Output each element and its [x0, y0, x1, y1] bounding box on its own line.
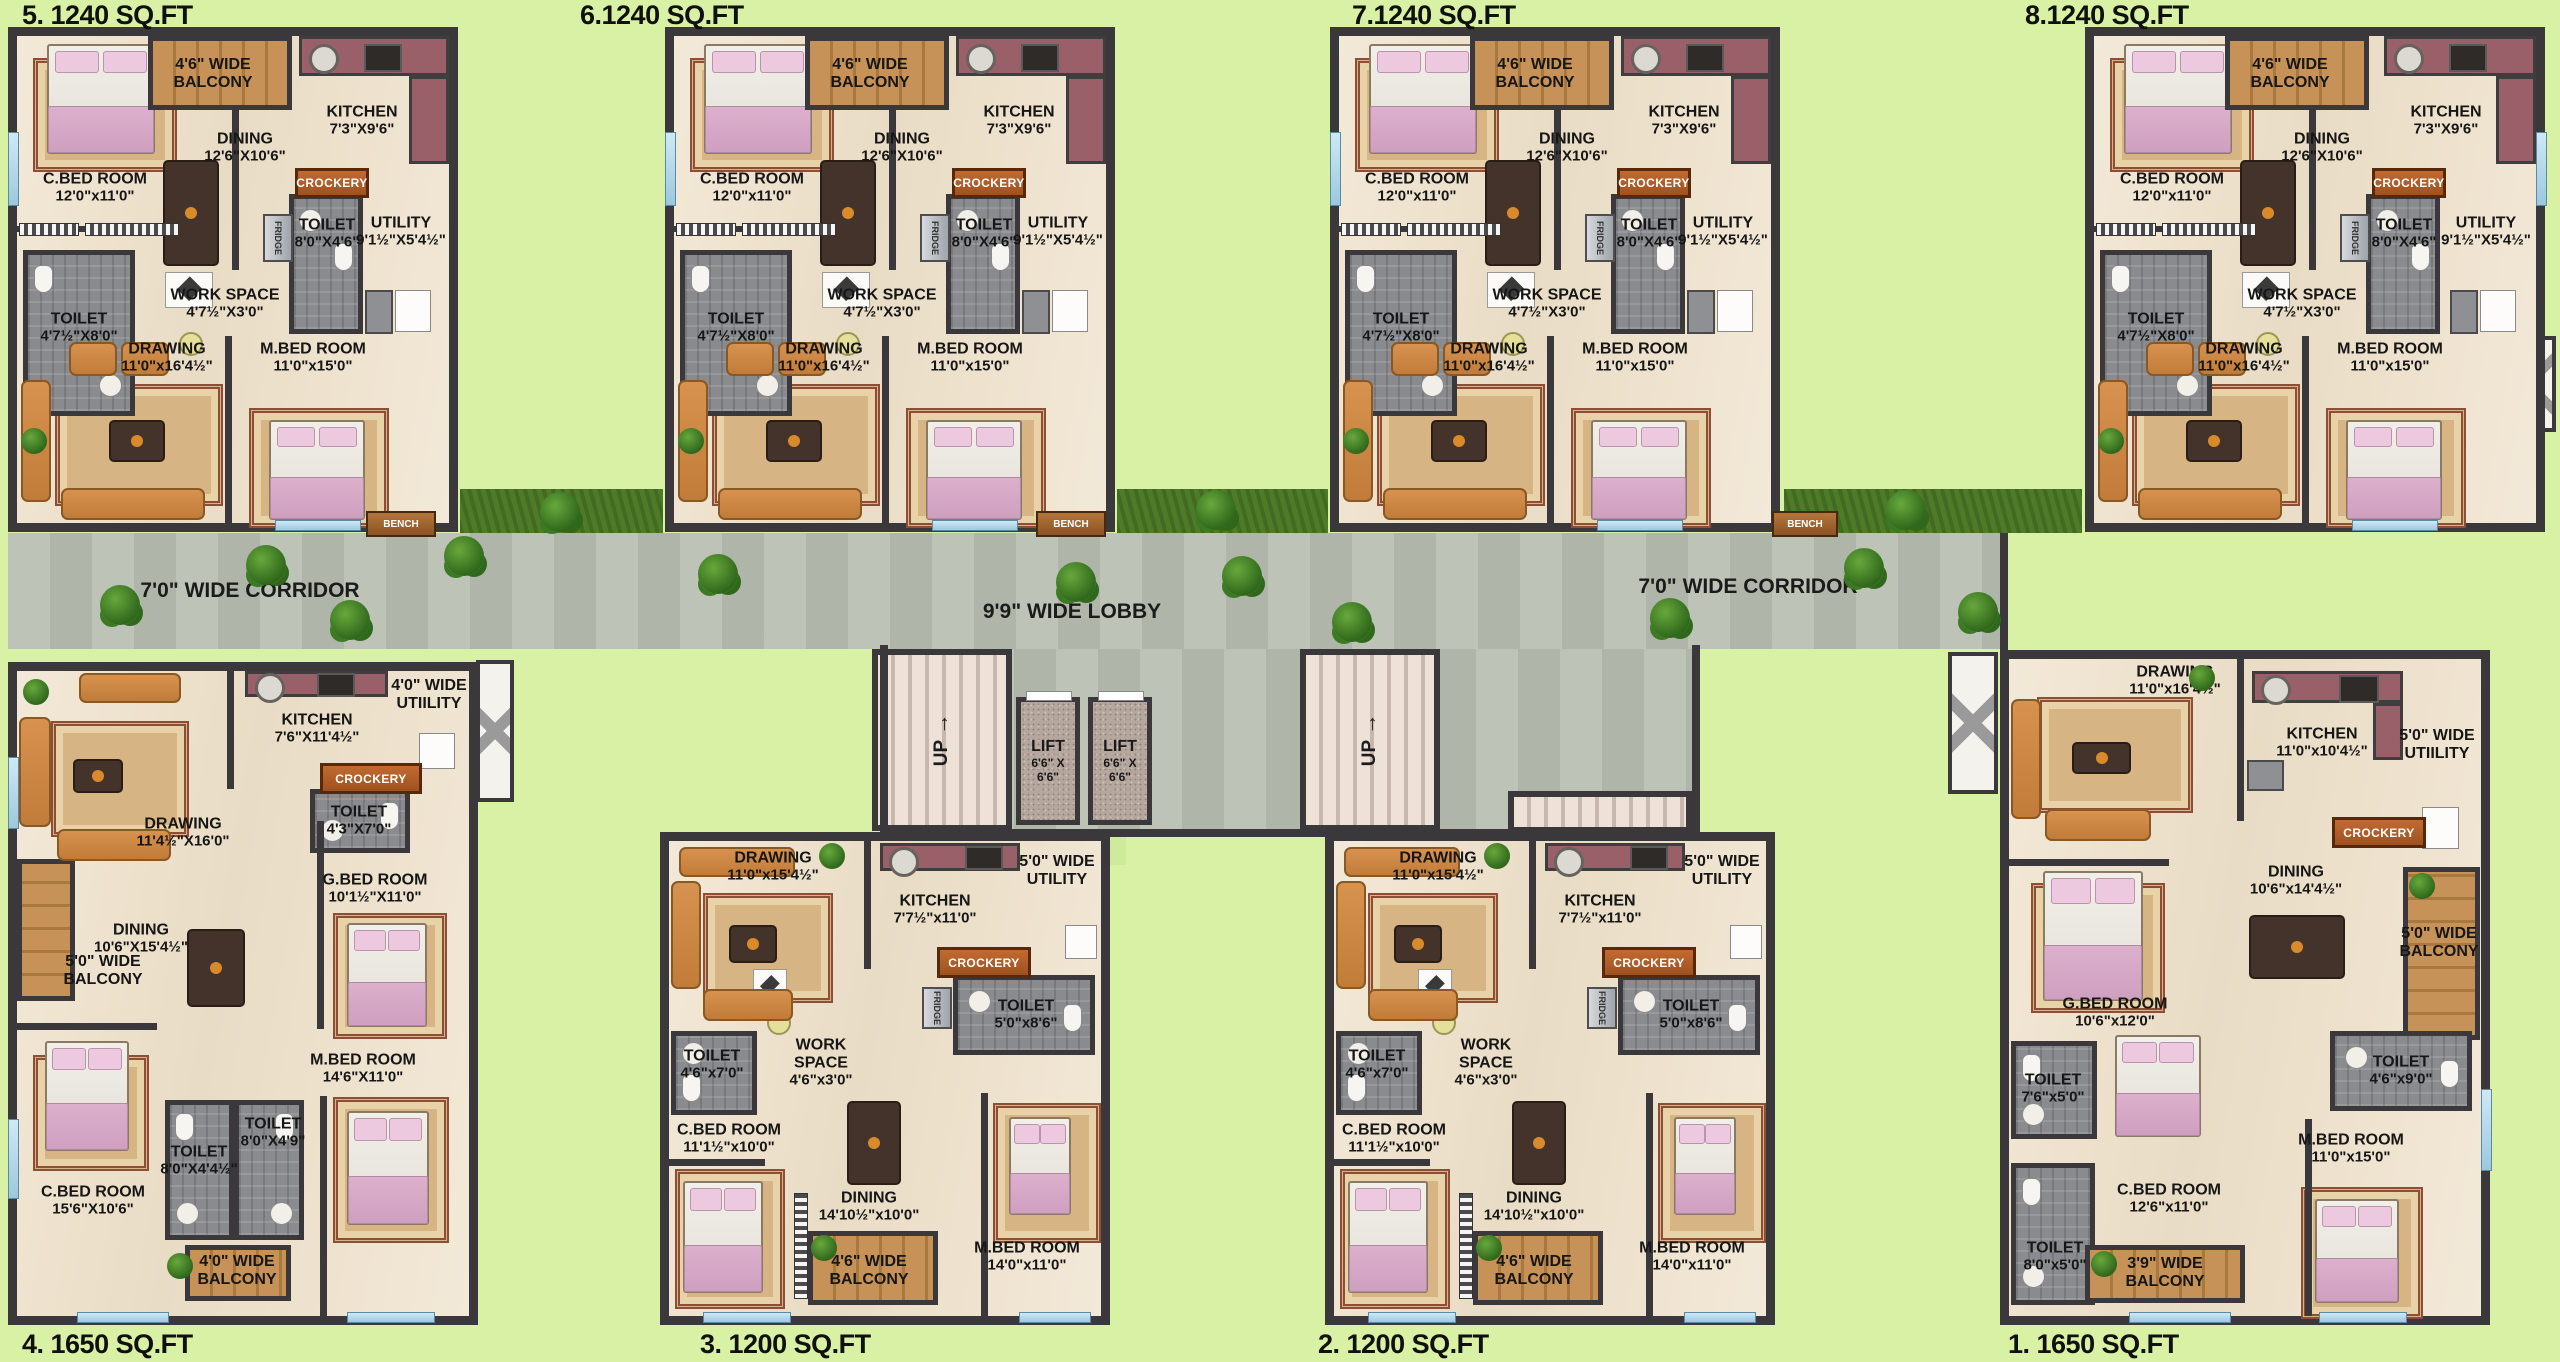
- toilet-label: TOILET5'0"x8'6": [994, 998, 1057, 1033]
- interior-wall: [2302, 336, 2309, 523]
- interior-wall: [882, 336, 889, 523]
- plant-icon: [2098, 428, 2124, 454]
- kitchen-appliance: [2247, 760, 2284, 791]
- plant-icon: [167, 1253, 193, 1279]
- toilet-icon: [691, 265, 710, 293]
- crockery-shelf: CROCKERY: [2332, 817, 2426, 848]
- cbed-label: C.BED ROOM12'0"x11'0": [1365, 171, 1469, 206]
- toilet-label: TOILET8'0"X4'4½": [160, 1144, 237, 1179]
- plant-icon: [2189, 665, 2215, 691]
- mbed-label: M.BED ROOM11'0"x15'0": [917, 341, 1023, 376]
- sink-icon: [966, 44, 996, 74]
- plant-icon: [2409, 873, 2435, 899]
- crockery-shelf: CROCKERY: [937, 947, 1031, 978]
- interior-wall: [1529, 841, 1536, 969]
- unit-7-title: 7.1240 SQ.FT: [1352, 0, 1516, 31]
- toilet-room: [2011, 1163, 2095, 1305]
- drawing-label: DRAWING11'0"x16'4½": [121, 341, 212, 376]
- tree: [1222, 556, 1262, 596]
- railing-window: [794, 1193, 808, 1299]
- sofa: [19, 717, 51, 827]
- armchair: [69, 342, 117, 376]
- coffee-table: [2072, 742, 2131, 774]
- toilet-room: [946, 194, 1020, 334]
- toilet-label: TOILET4'7½"X8'0": [697, 311, 774, 346]
- crockery-shelf: CROCKERY: [952, 168, 1026, 198]
- unit-5-title: 5. 1240 SQ.FT: [22, 0, 193, 31]
- bed: [683, 1181, 763, 1293]
- bed: [347, 923, 427, 1027]
- bed: [1674, 1117, 1736, 1215]
- kitchen-label: KITCHEN7'7½"x11'0": [1558, 893, 1641, 928]
- washing-machine: [419, 733, 455, 769]
- dining-table: [1485, 160, 1541, 266]
- lift-1: LIFT6'6" X 6'6": [1016, 697, 1080, 825]
- corridor-wall-end: [2000, 533, 2008, 651]
- washbasin-icon: [1421, 374, 1444, 397]
- dining-label: DINING14'10½"x10'0": [819, 1190, 920, 1225]
- plant-icon: [21, 428, 47, 454]
- interior-wall: [1547, 336, 1554, 523]
- drawing-label: DRAWING11'0"x15'4½": [727, 850, 818, 885]
- coffee-table: [729, 925, 777, 963]
- utility-label: UTILITY9'1½"X5'4½": [1013, 215, 1103, 250]
- toilet-label: TOILET8'0"X4'6": [2372, 217, 2437, 252]
- mbed-label: M.BED ROOM11'0"x15'0": [1582, 341, 1688, 376]
- sofa: [703, 989, 793, 1021]
- toilet-label: TOILET8'0"x5'0": [2023, 1240, 2086, 1275]
- floor-plan-page: { "palette": { "background": "#d9f1a4", …: [0, 0, 2560, 1362]
- kitchen-label: KITCHEN7'3"X9'6": [1648, 104, 1719, 139]
- toilet-label: TOILET8'0"X4'9": [241, 1116, 306, 1151]
- gbed-label: G.BED ROOM10'1½"X11'0": [323, 872, 428, 907]
- kitchen-label: KITCHEN11'0"x10'4½": [2276, 726, 2367, 761]
- unit-1-title: 1. 1650 SQ.FT: [2008, 1329, 2179, 1360]
- sink-icon: [1554, 847, 1584, 877]
- workspace-label: WORKSPACE4'6"x3'0": [789, 1037, 852, 1090]
- unit-7: C.BED ROOM12'0"x11'0" 4'6" WIDEBALCONY K…: [1330, 27, 1780, 532]
- washbasin-icon: [2345, 1046, 2368, 1069]
- sink-icon: [2261, 675, 2291, 705]
- toilet-label: TOILET4'6"x9'0": [2369, 1054, 2432, 1089]
- interior-wall: [320, 1096, 327, 1316]
- unit-3: KITCHEN7'7½"x11'0" 5'0" WIDEUTILITY CROC…: [660, 832, 1110, 1325]
- toilet-icon: [1356, 265, 1375, 293]
- plant-icon: [819, 843, 845, 869]
- cbed-label: C.BED ROOM12'0"x11'0": [43, 171, 147, 206]
- utility-fixture: [2450, 290, 2478, 334]
- washing-machine: [2480, 290, 2516, 332]
- toilet-room: [2366, 194, 2440, 334]
- dining-label: DINING10'6"x14'4½": [2250, 864, 2342, 899]
- sink-icon: [2394, 44, 2424, 74]
- sofa: [671, 881, 701, 989]
- toilet-icon: [175, 1113, 194, 1141]
- sink-icon: [889, 847, 919, 877]
- washing-machine: [1717, 290, 1753, 332]
- armchair: [1391, 342, 1439, 376]
- toilet-icon: [2440, 1060, 2459, 1088]
- balcony-label: 4'6" WIDEBALCONY: [829, 1253, 908, 1289]
- washbasin-icon: [2022, 1103, 2045, 1126]
- corridor-right-label: 7'0" WIDE CORRIDOR: [1638, 575, 1857, 599]
- coffee-table: [1394, 925, 1442, 963]
- balcony-label: 4'6" WIDEBALCONY: [173, 56, 252, 92]
- balcony-label: 4'6" WIDEBALCONY: [830, 56, 909, 92]
- stove-icon: [1686, 44, 1724, 72]
- interior-wall: [317, 821, 324, 1029]
- plant-icon: [1343, 428, 1369, 454]
- crockery-shelf: CROCKERY: [2372, 168, 2446, 198]
- mbed-label: M.BED ROOM14'0"x11'0": [1639, 1240, 1745, 1275]
- bed: [2043, 871, 2143, 1001]
- utility-label: UTILITY9'1½"X5'4½": [2441, 215, 2531, 250]
- dining-table: [847, 1101, 901, 1185]
- kitchen-counter: [1066, 76, 1106, 164]
- sofa: [1383, 488, 1527, 520]
- dining-table: [2240, 160, 2296, 266]
- tree: [444, 536, 484, 576]
- unit-5: C.BED ROOM12'0"x11'0" 4'6" WIDEBALCONY K…: [8, 27, 458, 532]
- unit-2-title: 2. 1200 SQ.FT: [1318, 1329, 1489, 1360]
- sink-icon: [1631, 44, 1661, 74]
- plant-icon: [811, 1235, 837, 1261]
- fridge-box: FRIDGE: [263, 214, 293, 262]
- lobby-wall-left: [880, 645, 888, 837]
- sofa: [2138, 488, 2282, 520]
- bed: [2315, 1199, 2399, 1303]
- bench-1: BENCH: [366, 511, 436, 537]
- gbed-label: G.BED ROOM10'6"x12'0": [2063, 996, 2168, 1031]
- toilet-label: TOILET7'6"x5'0": [2021, 1072, 2084, 1107]
- dining-label: DINING12'6"X10'6": [204, 131, 285, 166]
- interior-wall: [17, 1023, 157, 1030]
- dining-table: [2249, 915, 2345, 979]
- window: [1019, 1312, 1091, 1323]
- window: [1684, 1312, 1756, 1323]
- utility-label: 5'0" WIDEUTILITY: [1019, 853, 1094, 889]
- toilet-label: TOILET4'7½"X8'0": [2117, 311, 2194, 346]
- dining-label: DINING10'6"X15'4½": [94, 922, 188, 957]
- unit-8-title: 8.1240 SQ.FT: [2025, 0, 2189, 31]
- duct-shaft-1: [476, 660, 514, 802]
- drawing-label: DRAWING11'0"x16'4½": [778, 341, 869, 376]
- kitchen-label: KITCHEN7'7½"x11'0": [893, 893, 976, 928]
- cbed-label: C.BED ROOM12'6"x11'0": [2117, 1182, 2221, 1217]
- workspace-label: WORK SPACE4'7½"X3'0": [170, 287, 279, 322]
- stove-icon: [1021, 44, 1059, 72]
- sofa: [2011, 699, 2041, 819]
- coffee-table: [109, 420, 165, 462]
- duct-shaft-2: [1948, 652, 1998, 794]
- window: [2352, 520, 2438, 531]
- drawing-label: DRAWING11'4½"X16'0": [136, 816, 229, 851]
- kitchen-counter: [2496, 76, 2536, 164]
- railing-window: [2162, 223, 2256, 236]
- window: [665, 132, 676, 206]
- window: [8, 757, 19, 829]
- coffee-table: [2186, 420, 2242, 462]
- lift-2: LIFT6'6" X 6'6": [1088, 697, 1152, 825]
- plant-icon: [1476, 1235, 1502, 1261]
- toilet-label: TOILET4'6"x7'0": [1345, 1048, 1408, 1083]
- workspace-label: WORKSPACE4'6"x3'0": [1454, 1037, 1517, 1090]
- crockery-shelf: CROCKERY: [295, 168, 369, 198]
- interior-wall: [669, 1159, 765, 1166]
- kitchen-counter: [409, 76, 449, 164]
- interior-wall: [227, 671, 234, 789]
- toilet-label: TOILET5'0"x8'6": [1659, 998, 1722, 1033]
- bed: [1369, 44, 1477, 154]
- railing-window: [85, 223, 179, 236]
- lobby-wall-bottom: [880, 829, 1700, 837]
- window: [347, 1312, 435, 1323]
- drawing-label: DRAWING11'0"x16'4½": [2198, 341, 2289, 376]
- balcony-label: 5'0" WIDEBALCONY: [2399, 925, 2478, 961]
- toilet-icon: [34, 265, 53, 293]
- lift-sill-2: [1098, 691, 1144, 701]
- stove-icon: [1630, 846, 1668, 870]
- lift-sill-1: [1026, 691, 1072, 701]
- unit-4: KITCHEN7'6"X11'4½" 4'0" WIDEUTIILITY CRO…: [8, 662, 478, 1325]
- toilet-label: TOILET8'0"X4'6": [1617, 217, 1682, 252]
- coffee-table: [1431, 420, 1487, 462]
- washing-machine: [1730, 925, 1762, 959]
- railing-window: [19, 223, 79, 236]
- bed: [47, 44, 155, 154]
- bed: [2124, 44, 2232, 154]
- toilet-label: TOILET4'7½"X8'0": [40, 311, 117, 346]
- window: [8, 132, 19, 206]
- tree: [1332, 602, 1372, 642]
- staircase-right-lower-flight: [1508, 791, 1692, 833]
- mbed-label: M.BED ROOM14'0"x11'0": [974, 1240, 1080, 1275]
- interior-wall: [2237, 659, 2244, 821]
- cbed-label: C.BED ROOM11'1½"x10'0": [1342, 1122, 1446, 1157]
- washbasin-icon: [176, 1202, 199, 1225]
- toilet-room: [289, 194, 363, 334]
- railing-window: [1459, 1193, 1473, 1299]
- dining-label: DINING12'6"X10'6": [861, 131, 942, 166]
- window: [2319, 1312, 2407, 1323]
- washbasin-icon: [968, 990, 991, 1013]
- crockery-shelf: CROCKERY: [320, 763, 422, 794]
- sink-icon: [255, 673, 285, 703]
- sofa: [1336, 881, 1366, 989]
- armchair: [726, 342, 774, 376]
- kitchen-label: KITCHEN7'3"X9'6": [2410, 104, 2481, 139]
- crockery-shelf: CROCKERY: [1617, 168, 1691, 198]
- armchair: [2146, 342, 2194, 376]
- toilet-label: TOILET8'0"X4'6": [952, 217, 1017, 252]
- up-label-left: UP: [878, 655, 1006, 825]
- utility-fixture: [365, 290, 393, 334]
- washbasin-icon: [2176, 374, 2199, 397]
- tree: [1886, 490, 1926, 530]
- lobby-label: 9'9" WIDE LOBBY: [983, 600, 1161, 624]
- unit-1: KITCHEN11'0"x10'4½" 5'0" WIDEUTIILITY CR…: [2000, 650, 2490, 1325]
- washing-machine: [2422, 807, 2459, 849]
- armchair: [79, 673, 181, 703]
- bed: [1348, 1181, 1428, 1293]
- sofa: [2045, 809, 2151, 841]
- window: [1368, 1312, 1456, 1323]
- balcony-label: 4'0" WIDEBALCONY: [197, 1253, 276, 1289]
- unit-2: KITCHEN7'7½"x11'0" 5'0" WIDEUTILITY CROC…: [1325, 832, 1775, 1325]
- coffee-table: [73, 759, 123, 793]
- workspace-label: WORK SPACE4'7½"X3'0": [827, 287, 936, 322]
- tree: [1650, 598, 1690, 638]
- balcony-label: 3'9" WIDEBALCONY: [2125, 1255, 2204, 1291]
- dining-label: DINING12'6"X10'6": [1526, 131, 1607, 166]
- utility-label: 4'0" WIDEUTIILITY: [391, 677, 466, 713]
- washbasin-icon: [99, 374, 122, 397]
- drawing-label: DRAWING11'0"x16'4½": [1443, 341, 1534, 376]
- cbed-label: C.BED ROOM15'6"X10'6": [41, 1184, 145, 1219]
- utility-fixture: [1687, 290, 1715, 334]
- interior-wall: [2009, 859, 2169, 866]
- interior-wall: [981, 1093, 988, 1316]
- window: [77, 1312, 169, 1323]
- unit-6-title: 6.1240 SQ.FT: [580, 0, 744, 31]
- balcony-label: 4'6" WIDEBALCONY: [2250, 56, 2329, 92]
- window: [1330, 132, 1341, 206]
- mbed-label: M.BED ROOM14'6"X11'0": [310, 1052, 416, 1087]
- tree: [1844, 548, 1884, 588]
- kitchen-label: KITCHEN7'3"X9'6": [983, 104, 1054, 139]
- mbed-label: M.BED ROOM11'0"x15'0": [2337, 341, 2443, 376]
- toilet-room: [1611, 194, 1685, 334]
- utility-label: 5'0" WIDEUTIILITY: [2399, 727, 2474, 763]
- tree: [246, 545, 286, 585]
- kitchen-counter: [1731, 76, 1771, 164]
- railing-window: [1341, 223, 1401, 236]
- railing-window: [742, 223, 836, 236]
- staircase-left: UP: [872, 649, 1012, 831]
- cbed-label: C.BED ROOM11'1½"x10'0": [677, 1122, 781, 1157]
- cbed-label: C.BED ROOM12'0"x11'0": [700, 171, 804, 206]
- toilet-icon: [1728, 1004, 1747, 1032]
- bed: [926, 420, 1022, 520]
- unit-8: C.BED ROOM12'0"x11'0" 4'6" WIDEBALCONY K…: [2085, 27, 2545, 532]
- bed: [704, 44, 812, 154]
- window: [2536, 132, 2547, 206]
- utility-fixture: [1022, 290, 1050, 334]
- washing-machine: [1065, 925, 1097, 959]
- tree: [698, 554, 738, 594]
- washbasin-icon: [756, 374, 779, 397]
- bed: [2115, 1035, 2201, 1137]
- bed: [2346, 420, 2442, 520]
- plant-icon: [678, 428, 704, 454]
- bench-3: BENCH: [1772, 511, 1838, 537]
- crockery-shelf: CROCKERY: [1602, 947, 1696, 978]
- window: [703, 1312, 791, 1323]
- tree: [100, 585, 140, 625]
- sofa: [61, 488, 205, 520]
- window: [932, 520, 1018, 531]
- kitchen-label: KITCHEN7'3"X9'6": [326, 104, 397, 139]
- bed: [1009, 1117, 1071, 1215]
- corridor-left-label: 7'0" WIDE CORRIDOR: [140, 579, 359, 603]
- balcony-label: 4'6" WIDEBALCONY: [1495, 56, 1574, 92]
- stove-icon: [2449, 44, 2487, 72]
- unit-6: C.BED ROOM12'0"x11'0" 4'6" WIDEBALCONY K…: [665, 27, 1115, 532]
- toilet-icon: [2022, 1178, 2041, 1206]
- dining-table: [163, 160, 219, 266]
- window: [2129, 1312, 2231, 1323]
- drawing-label: DRAWING11'0"x15'4½": [1392, 850, 1483, 885]
- tree: [1056, 562, 1096, 602]
- unit-4-title: 4. 1650 SQ.FT: [22, 1329, 193, 1360]
- tree: [540, 492, 580, 532]
- mbed-label: M.BED ROOM11'0"x15'0": [2298, 1132, 2404, 1167]
- railing-window: [1407, 223, 1501, 236]
- up-label-right: UP: [1306, 655, 1434, 825]
- tree: [330, 600, 370, 640]
- utility-label: 5'0" WIDEUTILITY: [1684, 853, 1759, 889]
- railing-window: [2096, 223, 2156, 236]
- fridge-box: FRIDGE: [920, 214, 950, 262]
- washbasin-icon: [1633, 990, 1656, 1013]
- lobby-wall-right: [1692, 645, 1700, 837]
- plant-icon: [1484, 843, 1510, 869]
- tree: [1958, 592, 1998, 632]
- cbed-label: C.BED ROOM12'0"x11'0": [2120, 171, 2224, 206]
- interior-wall: [1646, 1093, 1653, 1316]
- utility-label: UTILITY9'1½"X5'4½": [356, 215, 446, 250]
- balcony-label: 5'0" WIDEBALCONY: [63, 953, 142, 989]
- dining-label: DINING12'6"X10'6": [2281, 131, 2362, 166]
- washing-machine: [395, 290, 431, 332]
- sink-icon: [309, 44, 339, 74]
- plant-icon: [23, 679, 49, 705]
- coffee-table: [766, 420, 822, 462]
- window: [2481, 1089, 2492, 1171]
- utility-label: UTILITY9'1½"X5'4½": [1678, 215, 1768, 250]
- sofa: [1368, 989, 1458, 1021]
- bed: [347, 1111, 429, 1225]
- window: [1597, 520, 1683, 531]
- kitchen-label: KITCHEN7'6"X11'4½": [275, 712, 360, 747]
- dining-table: [187, 929, 245, 1007]
- unit-3-title: 3. 1200 SQ.FT: [700, 1329, 871, 1360]
- toilet-label: TOILET4'3"X7'0": [327, 804, 392, 839]
- toilet-icon: [2111, 265, 2130, 293]
- fridge-box: FRIDGE: [2340, 214, 2370, 262]
- workspace-label: WORK SPACE4'7½"X3'0": [2247, 287, 2356, 322]
- balcony-label: 4'6" WIDEBALCONY: [1494, 1253, 1573, 1289]
- toilet-label: TOILET4'6"x7'0": [680, 1048, 743, 1083]
- stove-icon: [317, 673, 355, 697]
- dining-table: [820, 160, 876, 266]
- bed: [45, 1041, 129, 1151]
- fridge-box: FRIDGE: [922, 987, 952, 1029]
- sofa: [718, 488, 862, 520]
- tree: [1196, 490, 1236, 530]
- toilet-label: TOILET8'0"X4'6": [295, 217, 360, 252]
- window: [275, 520, 361, 531]
- fridge-box: FRIDGE: [1587, 987, 1617, 1029]
- dining-table: [1512, 1101, 1566, 1185]
- dining-label: DINING14'10½"x10'0": [1484, 1190, 1585, 1225]
- bed: [269, 420, 365, 520]
- window: [8, 1119, 19, 1199]
- stove-icon: [2339, 675, 2379, 703]
- toilet-icon: [1063, 1004, 1082, 1032]
- interior-wall: [225, 336, 232, 523]
- bed: [1591, 420, 1687, 520]
